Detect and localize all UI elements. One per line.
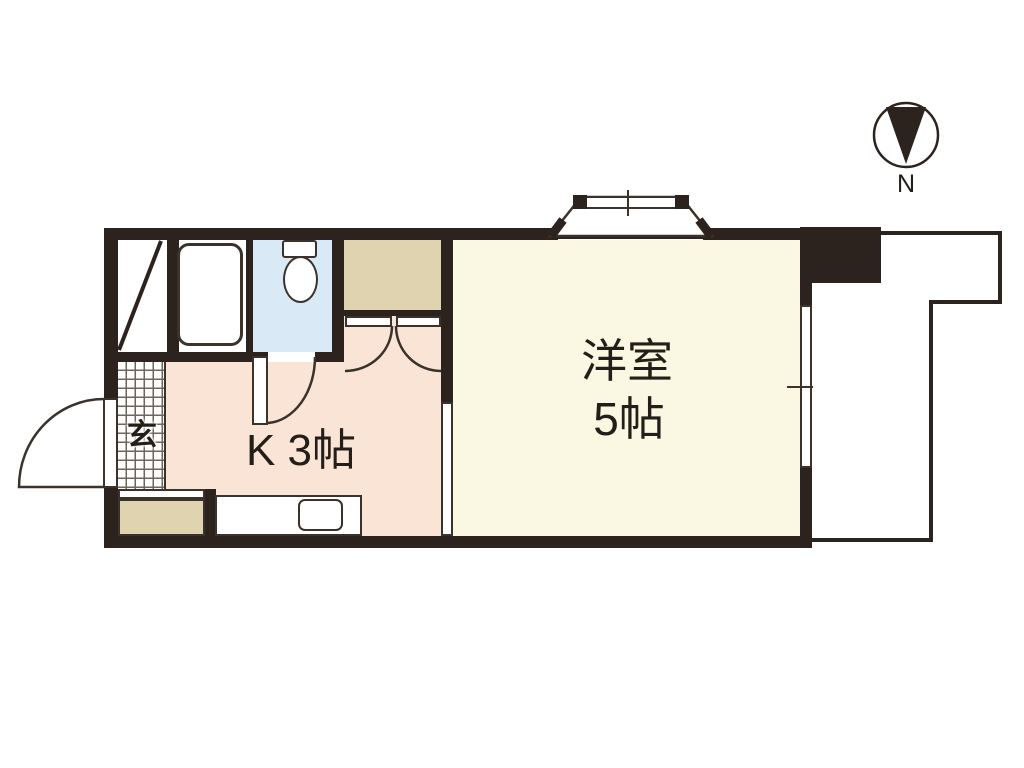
bay-window-glass bbox=[585, 197, 677, 208]
entrance-door-panel bbox=[103, 398, 118, 488]
shoe-cabinet bbox=[118, 499, 205, 536]
closet-door-right bbox=[396, 316, 441, 327]
side-window bbox=[800, 305, 812, 468]
wall bbox=[104, 228, 558, 240]
wall bbox=[800, 227, 881, 283]
north-label: N bbox=[897, 170, 915, 198]
genkan-label: 玄 bbox=[127, 421, 157, 451]
western-room bbox=[453, 240, 800, 536]
wall bbox=[703, 228, 812, 240]
entrance-door-swing-arc bbox=[19, 399, 104, 487]
western-room-label-line2: 5帖 bbox=[593, 396, 665, 442]
wall bbox=[332, 240, 344, 362]
wall bbox=[246, 240, 253, 352]
kitchen-sink bbox=[298, 499, 343, 531]
bay-window-mullion-right bbox=[675, 195, 689, 209]
kitchen-label: K 3帖 bbox=[246, 429, 356, 473]
floor-plan: N 洋室 5帖 K 3帖 玄 bbox=[0, 0, 1024, 768]
room-sliding-door bbox=[441, 402, 453, 536]
wall bbox=[104, 228, 118, 398]
bay-window-mullion-left bbox=[573, 195, 587, 209]
wall bbox=[800, 283, 812, 305]
bay-window-opening bbox=[558, 226, 703, 239]
bathtub bbox=[177, 243, 243, 346]
closet-door-left bbox=[345, 316, 392, 327]
north-compass: N bbox=[874, 103, 938, 198]
north-arrow-icon bbox=[886, 107, 926, 164]
western-room-label-line1: 洋室 bbox=[581, 338, 673, 384]
toilet-door-leaf bbox=[252, 356, 268, 425]
entry-step bbox=[118, 489, 205, 499]
closet bbox=[344, 240, 441, 310]
wall bbox=[104, 536, 812, 548]
toilet-bowl bbox=[283, 256, 318, 303]
shaft-room bbox=[118, 240, 167, 352]
compass-circle bbox=[874, 103, 938, 167]
wall bbox=[104, 352, 268, 362]
wall bbox=[800, 468, 812, 536]
wall bbox=[441, 240, 453, 402]
